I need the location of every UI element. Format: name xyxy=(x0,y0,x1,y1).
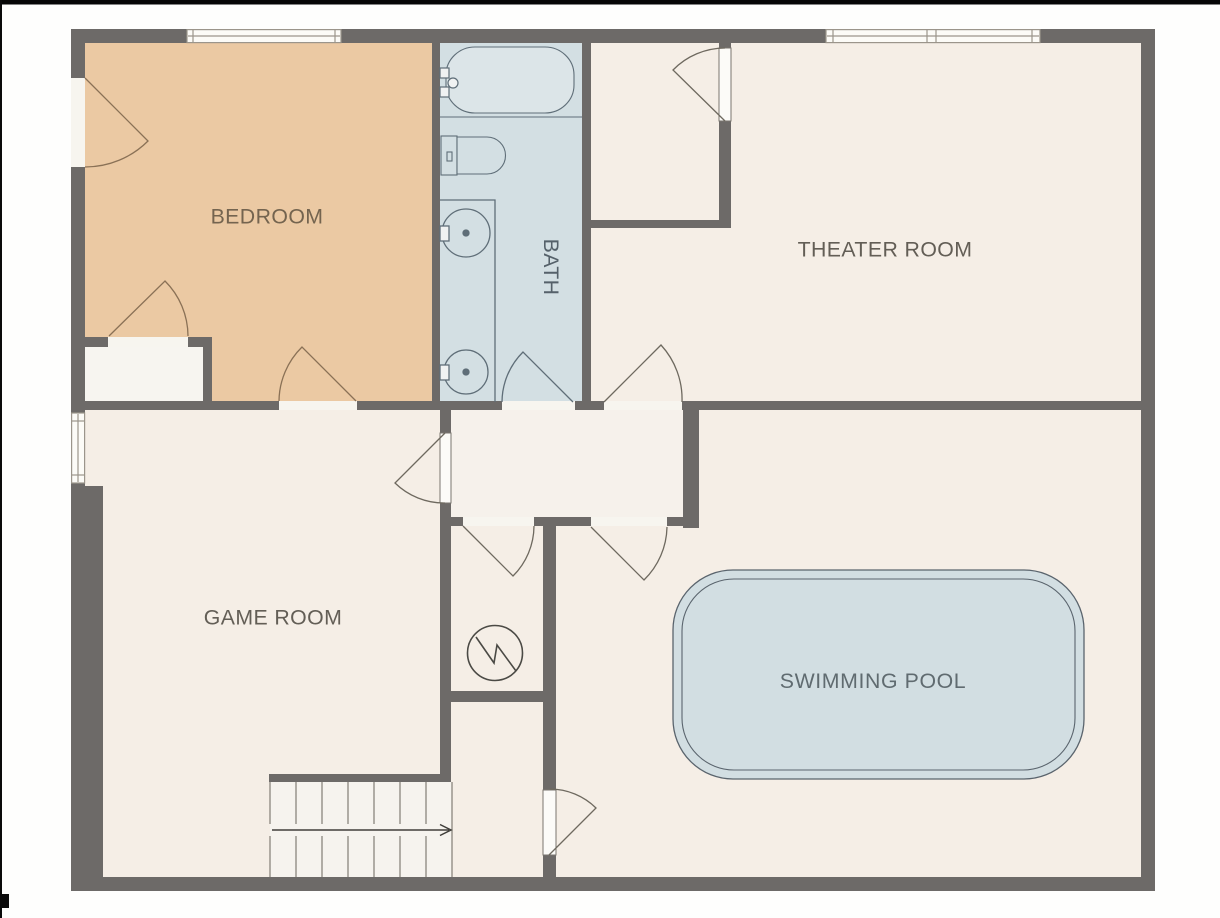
svg-text:GAME ROOM: GAME ROOM xyxy=(204,606,342,630)
svg-text:THEATER ROOM: THEATER ROOM xyxy=(798,238,973,262)
svg-text:SWIMMING POOL: SWIMMING POOL xyxy=(780,669,966,693)
svg-text:BEDROOM: BEDROOM xyxy=(211,205,324,229)
svg-text:BATH: BATH xyxy=(539,239,563,296)
